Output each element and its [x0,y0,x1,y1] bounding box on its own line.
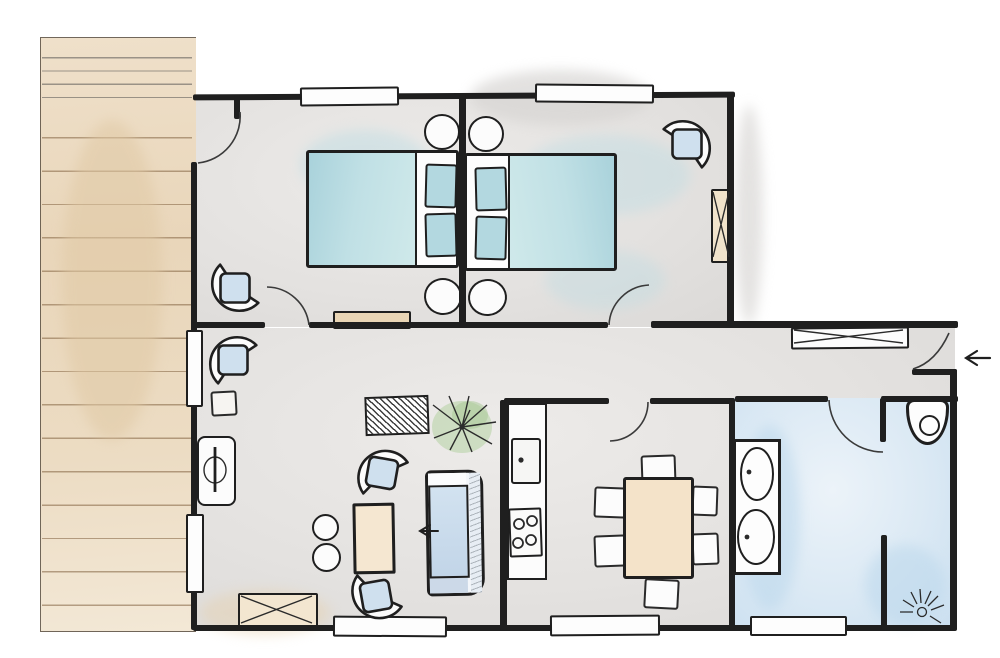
sofa-seat [428,485,470,579]
entry-arrow-icon [966,351,990,365]
kitchen-sink-unit [511,438,541,484]
window [186,330,203,407]
wall [950,369,957,630]
wall-bedroom-divider [459,95,466,328]
pillow [474,216,507,261]
wall-living-kitchen [500,400,507,630]
wall [735,396,828,402]
dining-chair [643,578,680,610]
bedside-stool [468,116,504,152]
mattress [309,153,417,265]
rug [364,395,429,436]
wall-toilet-nook [880,398,886,442]
wall [651,321,958,328]
dining-chair [593,534,626,567]
wall [193,322,265,328]
dining-chair [691,533,719,566]
wall [504,398,609,404]
wall [650,398,734,404]
toilet-bowl [919,415,940,436]
wall [729,398,735,629]
pouf [312,514,339,541]
bed-left [306,150,459,268]
wash-patch [865,545,945,625]
deck-shade-patch [62,120,162,440]
wall-shower-partition [881,535,887,630]
floor-plan [0,0,1000,658]
hall-sideboard [791,326,909,349]
wall [727,95,734,328]
window [186,514,204,593]
mattress [508,156,614,268]
wall [309,322,608,328]
window [750,616,847,636]
bedside-stool [424,114,460,150]
pouf [312,543,341,572]
deck-planks-top [42,45,192,107]
window [300,86,399,106]
pillow [424,164,457,209]
bathroom-vanity [733,439,781,575]
sofa-arm [430,578,468,594]
dining-table [623,477,694,579]
wall [234,95,240,119]
coffee-table [352,503,395,575]
console-table [197,436,236,506]
stove [508,507,543,557]
wall [881,396,958,402]
wash-patch [735,105,763,325]
dining-chair [691,486,718,517]
sofa [425,470,485,597]
sofa-back [469,473,482,593]
side-table [210,390,237,416]
pillow [424,213,457,258]
window [333,616,447,638]
sofa-arm [428,473,466,486]
window [550,615,660,637]
window [535,83,654,103]
dining-chair [593,486,626,518]
pillow [474,167,507,212]
tv-cabinet [238,593,318,629]
bed-right [464,153,617,271]
